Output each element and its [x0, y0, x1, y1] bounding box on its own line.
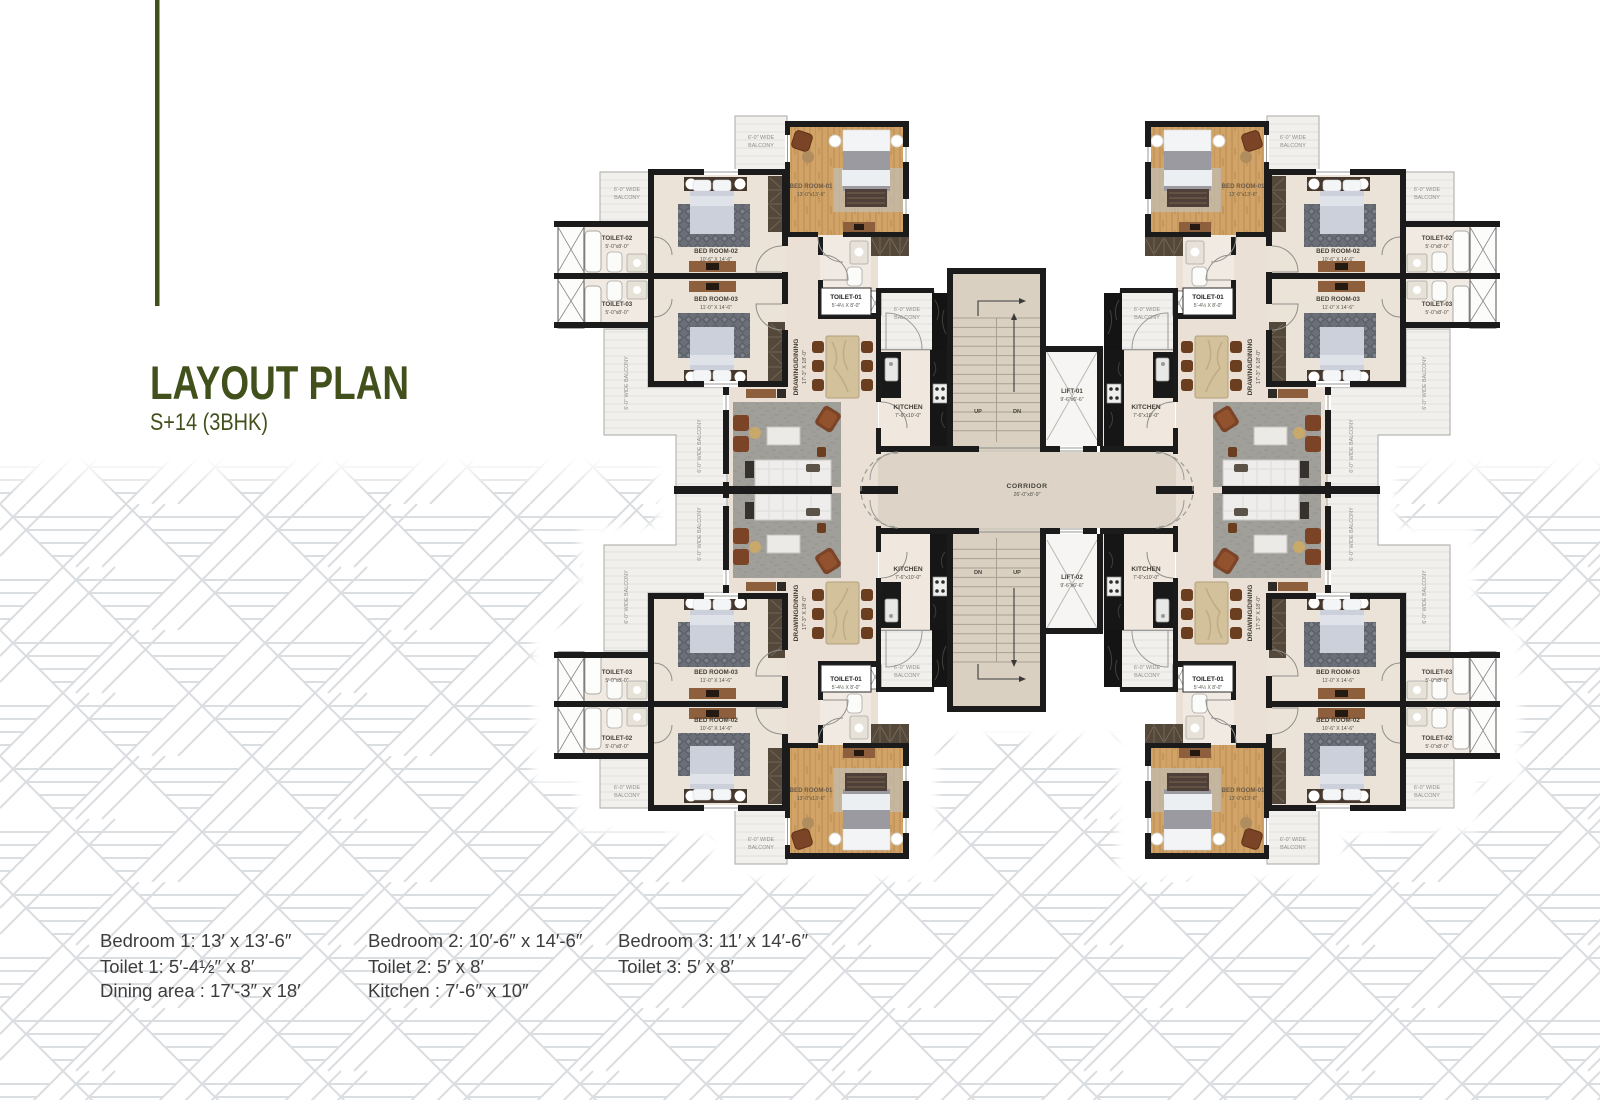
- svg-text:BALCONY: BALCONY: [1134, 315, 1160, 321]
- svg-text:6′-0″ WIDE: 6′-0″ WIDE: [614, 785, 641, 791]
- svg-text:CORRIDOR: CORRIDOR: [1006, 483, 1047, 490]
- svg-text:6′-0″ WIDE BALCONY: 6′-0″ WIDE BALCONY: [1349, 507, 1355, 561]
- svg-text:UP: UP: [974, 409, 982, 415]
- svg-text:TOILET-01: TOILET-01: [830, 294, 862, 301]
- svg-text:6′-0″ WIDE: 6′-0″ WIDE: [1414, 785, 1441, 791]
- svg-text:13′-0″x13′-6″: 13′-0″x13′-6″: [797, 796, 826, 802]
- svg-text:6′-0″ WIDE: 6′-0″ WIDE: [1280, 135, 1307, 141]
- svg-text:Toilet 1: 5′-4½″ x 8′: Toilet 1: 5′-4½″ x 8′: [100, 956, 255, 977]
- svg-text:BED ROOM-03: BED ROOM-03: [694, 669, 738, 676]
- svg-text:6′-0″ WIDE BALCONY: 6′-0″ WIDE BALCONY: [1422, 570, 1428, 624]
- svg-text:TOILET-01: TOILET-01: [1192, 294, 1224, 301]
- svg-text:11′-0″ X 14′-6″: 11′-0″ X 14′-6″: [1322, 305, 1354, 311]
- svg-text:13′-0″x13′-6″: 13′-0″x13′-6″: [1229, 796, 1258, 802]
- svg-text:5′-0″x8′-0″: 5′-0″x8′-0″: [1425, 678, 1448, 684]
- svg-text:DN: DN: [1013, 409, 1021, 415]
- svg-text:TOILET-03: TOILET-03: [602, 669, 633, 676]
- svg-text:7′-6″x10′-0″: 7′-6″x10′-0″: [895, 575, 921, 581]
- svg-text:11′-0″ X 14′-6″: 11′-0″ X 14′-6″: [1322, 678, 1354, 684]
- svg-text:11′-0″ X 14′-6″: 11′-0″ X 14′-6″: [700, 305, 732, 311]
- svg-text:BED ROOM-03: BED ROOM-03: [1316, 669, 1360, 676]
- svg-text:6′-0″ WIDE BALCONY: 6′-0″ WIDE BALCONY: [624, 570, 630, 624]
- svg-text:6′-0″ WIDE: 6′-0″ WIDE: [1414, 187, 1441, 193]
- svg-text:TOILET-01: TOILET-01: [1192, 676, 1224, 683]
- svg-text:BALCONY: BALCONY: [748, 845, 774, 851]
- svg-text:BALCONY: BALCONY: [1414, 195, 1440, 201]
- svg-text:10′-6″ X 14′-6″: 10′-6″ X 14′-6″: [1322, 257, 1354, 263]
- svg-text:DRAWING/DINING: DRAWING/DINING: [1247, 585, 1254, 642]
- svg-text:Toilet 2: 5′ x 8′: Toilet 2: 5′ x 8′: [368, 956, 484, 977]
- svg-text:10′-6″ X 14′-6″: 10′-6″ X 14′-6″: [700, 726, 732, 732]
- svg-text:KITCHEN: KITCHEN: [893, 566, 923, 573]
- svg-text:BED ROOM-02: BED ROOM-02: [1316, 248, 1360, 255]
- svg-text:BED ROOM-01: BED ROOM-01: [790, 787, 834, 794]
- svg-text:Bedroom 1: 13′ x 13′-6″: Bedroom 1: 13′ x 13′-6″: [100, 930, 292, 951]
- svg-text:6′-0″ WIDE: 6′-0″ WIDE: [894, 665, 921, 671]
- svg-text:Kitchen : 7′-6″ x 10″: Kitchen : 7′-6″ x 10″: [368, 980, 529, 1001]
- svg-text:LIFT-01: LIFT-01: [1061, 388, 1083, 395]
- svg-text:BED ROOM-02: BED ROOM-02: [1316, 717, 1360, 724]
- svg-text:6′-0″ WIDE BALCONY: 6′-0″ WIDE BALCONY: [1349, 419, 1355, 473]
- svg-text:9′-6″x6′-6″: 9′-6″x6′-6″: [1060, 583, 1083, 589]
- svg-text:BALCONY: BALCONY: [1134, 673, 1160, 679]
- svg-text:5′-4½ X 8′-0″: 5′-4½ X 8′-0″: [1194, 302, 1223, 309]
- svg-text:5′-4½ X 8′-0″: 5′-4½ X 8′-0″: [832, 684, 861, 691]
- svg-text:5′-0″x8′-0″: 5′-0″x8′-0″: [1425, 310, 1448, 316]
- svg-text:Toilet 3: 5′ x 8′: Toilet 3: 5′ x 8′: [618, 956, 734, 977]
- svg-text:BALCONY: BALCONY: [614, 793, 640, 799]
- svg-text:BED ROOM-02: BED ROOM-02: [694, 248, 738, 255]
- svg-text:KITCHEN: KITCHEN: [1131, 404, 1161, 411]
- svg-text:BALCONY: BALCONY: [614, 195, 640, 201]
- svg-text:LAYOUT PLAN: LAYOUT PLAN: [150, 356, 409, 409]
- svg-text:Bedroom 2: 10′-6″ x 14′-6″: Bedroom 2: 10′-6″ x 14′-6″: [368, 930, 583, 951]
- svg-text:6′-0″ WIDE: 6′-0″ WIDE: [748, 135, 775, 141]
- svg-text:5′-0″x8′-0″: 5′-0″x8′-0″: [1425, 244, 1448, 250]
- svg-text:6′-0″ WIDE: 6′-0″ WIDE: [614, 187, 641, 193]
- svg-text:S+14 (3BHK): S+14 (3BHK): [150, 409, 268, 436]
- svg-text:KITCHEN: KITCHEN: [1131, 566, 1161, 573]
- svg-text:17′-3″ X 18′-0″: 17′-3″ X 18′-0″: [1256, 596, 1262, 630]
- svg-text:Dining area : 17′-3″ x 18′: Dining area : 17′-3″ x 18′: [100, 980, 301, 1001]
- svg-text:5′-4½ X 8′-0″: 5′-4½ X 8′-0″: [832, 302, 861, 309]
- svg-text:7′-6″x10′-0″: 7′-6″x10′-0″: [1133, 413, 1159, 419]
- svg-text:BED ROOM-01: BED ROOM-01: [790, 183, 834, 190]
- svg-text:KITCHEN: KITCHEN: [893, 404, 923, 411]
- svg-text:TOILET-03: TOILET-03: [602, 301, 633, 308]
- svg-text:5′-0″x8′-0″: 5′-0″x8′-0″: [605, 744, 628, 750]
- svg-text:6′-0″ WIDE BALCONY: 6′-0″ WIDE BALCONY: [697, 419, 703, 473]
- svg-text:TOILET-03: TOILET-03: [1422, 669, 1453, 676]
- svg-text:17′-3″ X 18′-0″: 17′-3″ X 18′-0″: [802, 596, 808, 630]
- svg-text:BALCONY: BALCONY: [894, 315, 920, 321]
- svg-text:6′-0″ WIDE: 6′-0″ WIDE: [1134, 307, 1161, 313]
- svg-text:BALCONY: BALCONY: [748, 143, 774, 149]
- svg-text:17′-3″ X 18′-0″: 17′-3″ X 18′-0″: [802, 350, 808, 384]
- svg-text:TOILET-03: TOILET-03: [1422, 301, 1453, 308]
- svg-text:6′-0″ WIDE: 6′-0″ WIDE: [1134, 665, 1161, 671]
- svg-text:Bedroom 3: 11′ x 14′-6″: Bedroom 3: 11′ x 14′-6″: [618, 930, 808, 951]
- svg-text:DN: DN: [974, 570, 982, 576]
- svg-text:BED ROOM-03: BED ROOM-03: [1316, 296, 1360, 303]
- svg-text:TOILET-01: TOILET-01: [830, 676, 862, 683]
- svg-text:13′-0″x13′-6″: 13′-0″x13′-6″: [1229, 192, 1258, 198]
- svg-text:10′-6″ X 14′-6″: 10′-6″ X 14′-6″: [1322, 726, 1354, 732]
- svg-text:TOILET-02: TOILET-02: [1422, 235, 1453, 242]
- svg-text:BALCONY: BALCONY: [1280, 845, 1306, 851]
- svg-text:BED ROOM-01: BED ROOM-01: [1222, 183, 1266, 190]
- svg-text:5′-0″x8′-0″: 5′-0″x8′-0″: [1425, 744, 1448, 750]
- svg-text:BALCONY: BALCONY: [894, 673, 920, 679]
- svg-text:TOILET-02: TOILET-02: [602, 235, 633, 242]
- svg-text:BED ROOM-03: BED ROOM-03: [694, 296, 738, 303]
- svg-text:6′-0″ WIDE BALCONY: 6′-0″ WIDE BALCONY: [1422, 356, 1428, 410]
- svg-text:6′-0″ WIDE: 6′-0″ WIDE: [1280, 837, 1307, 843]
- svg-text:TOILET-02: TOILET-02: [602, 735, 633, 742]
- svg-text:5′-0″x8′-0″: 5′-0″x8′-0″: [605, 678, 628, 684]
- svg-text:6′-0″ WIDE BALCONY: 6′-0″ WIDE BALCONY: [624, 356, 630, 410]
- svg-text:DRAWING/DINING: DRAWING/DINING: [1247, 339, 1254, 396]
- svg-text:7′-6″x10′-0″: 7′-6″x10′-0″: [895, 413, 921, 419]
- svg-text:5′-0″x8′-0″: 5′-0″x8′-0″: [605, 244, 628, 250]
- svg-text:6′-0″ WIDE BALCONY: 6′-0″ WIDE BALCONY: [697, 507, 703, 561]
- svg-text:TOILET-02: TOILET-02: [1422, 735, 1453, 742]
- svg-text:13′-0″x13′-6″: 13′-0″x13′-6″: [797, 192, 826, 198]
- svg-text:BED ROOM-01: BED ROOM-01: [1222, 787, 1266, 794]
- svg-text:17′-3″ X 18′-0″: 17′-3″ X 18′-0″: [1256, 350, 1262, 384]
- svg-text:5′-0″x8′-0″: 5′-0″x8′-0″: [605, 310, 628, 316]
- svg-text:UP: UP: [1013, 570, 1021, 576]
- svg-text:BED ROOM-02: BED ROOM-02: [694, 717, 738, 724]
- svg-text:BALCONY: BALCONY: [1280, 143, 1306, 149]
- svg-text:5′-4½ X 8′-0″: 5′-4½ X 8′-0″: [1194, 684, 1223, 691]
- svg-text:26′-0″x8′-9″: 26′-0″x8′-9″: [1013, 492, 1040, 498]
- svg-text:6′-0″ WIDE: 6′-0″ WIDE: [748, 837, 775, 843]
- svg-text:9′-6″x6′-6″: 9′-6″x6′-6″: [1060, 397, 1083, 403]
- svg-text:LIFT-02: LIFT-02: [1061, 574, 1083, 581]
- svg-text:DRAWING/DINING: DRAWING/DINING: [793, 339, 800, 396]
- svg-text:BALCONY: BALCONY: [1414, 793, 1440, 799]
- svg-text:7′-6″x10′-0″: 7′-6″x10′-0″: [1133, 575, 1159, 581]
- svg-text:10′-6″ X 14′-6″: 10′-6″ X 14′-6″: [700, 257, 732, 263]
- svg-text:11′-0″ X 14′-6″: 11′-0″ X 14′-6″: [700, 678, 732, 684]
- svg-text:DRAWING/DINING: DRAWING/DINING: [793, 585, 800, 642]
- svg-text:6′-0″ WIDE: 6′-0″ WIDE: [894, 307, 921, 313]
